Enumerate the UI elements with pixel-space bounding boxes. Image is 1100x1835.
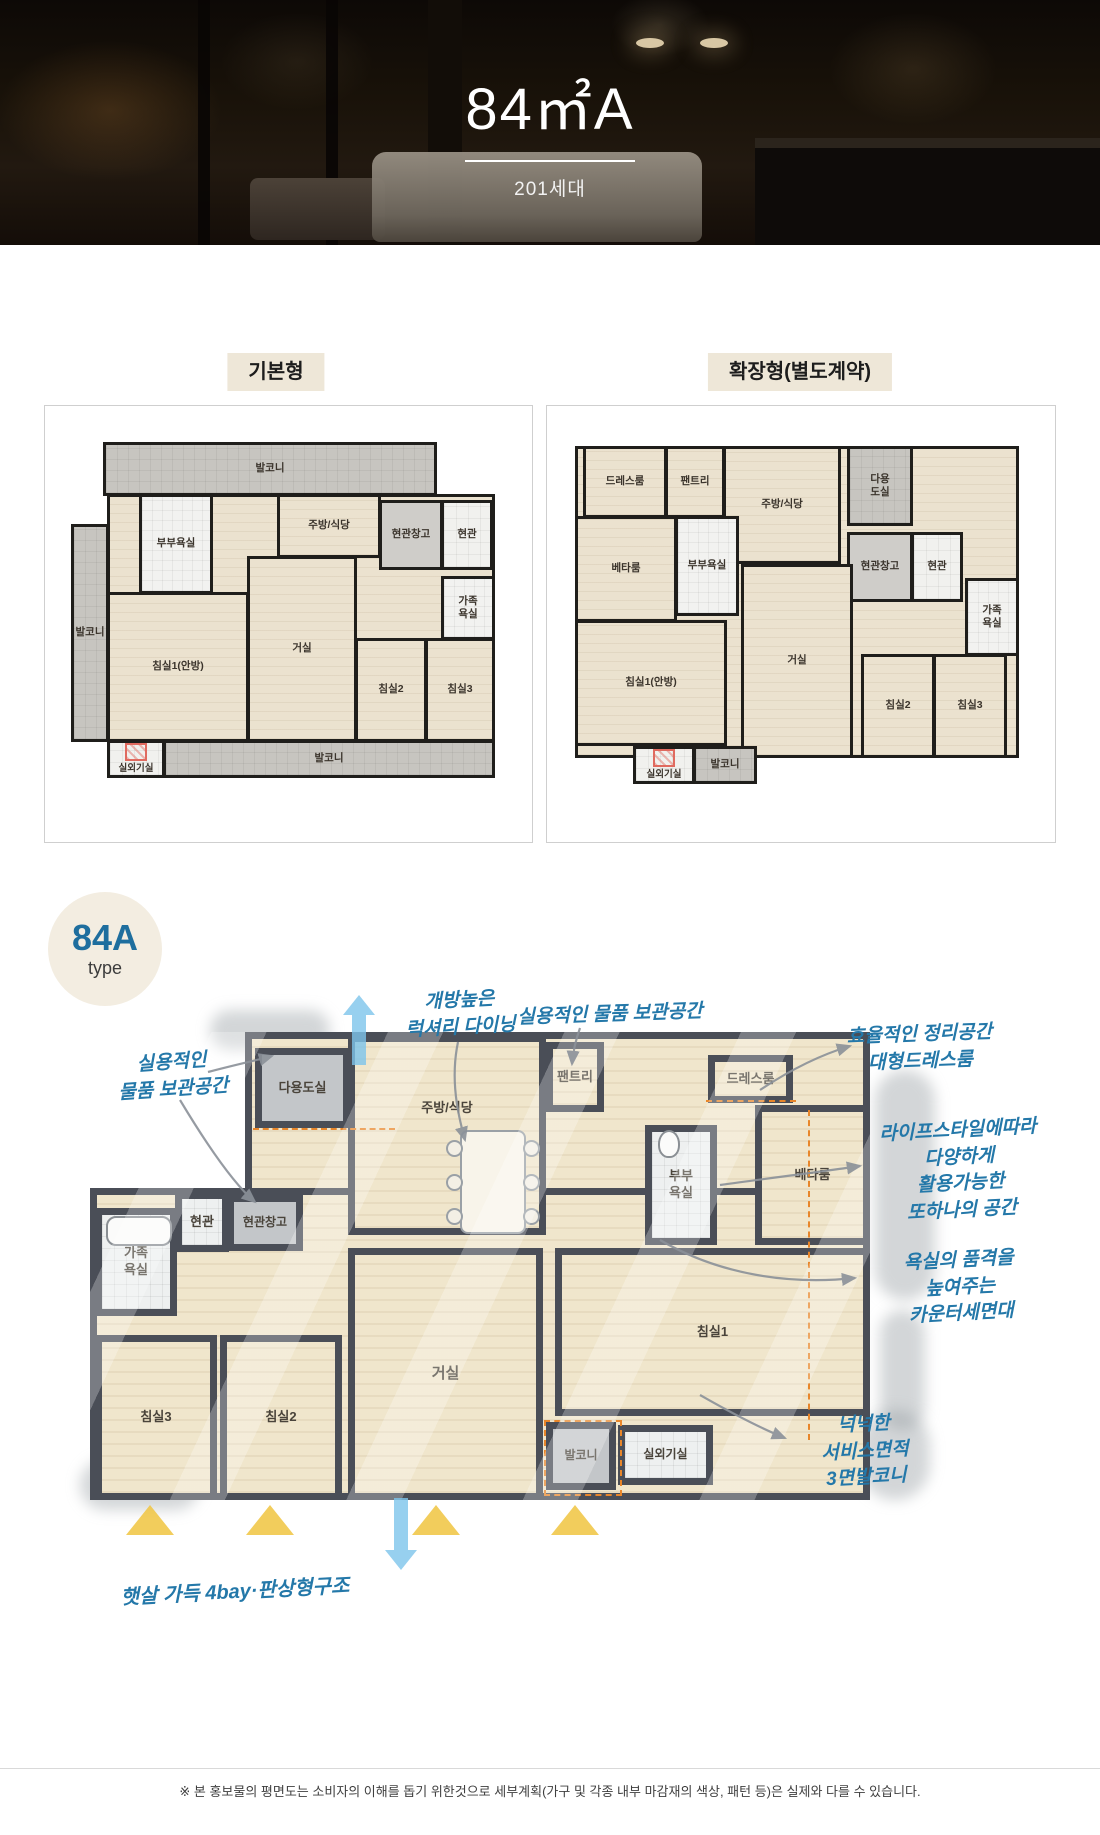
room-utility: 다용 도실 bbox=[847, 446, 913, 526]
room-balcony-top: 발코니 bbox=[103, 442, 437, 496]
note-counter: 욕실의 품격을 높여주는 카운터세면대 bbox=[858, 1243, 1062, 1333]
label-extended-type: 확장형(별도계약) bbox=[708, 353, 892, 391]
room-label: 현관 bbox=[927, 560, 946, 573]
arrow-to-balcony-note bbox=[700, 1395, 785, 1438]
room-label: 발코니 bbox=[256, 462, 285, 475]
room-label: 실외기실 bbox=[647, 769, 682, 781]
room-kitchen: 주방/식당 bbox=[723, 446, 841, 564]
room-label: 부부욕실 bbox=[157, 537, 196, 550]
room-label: 가족 욕실 bbox=[982, 604, 1001, 630]
room-ac: 실외기실 bbox=[633, 746, 695, 784]
title-divider bbox=[465, 160, 635, 162]
room-entry-storage: 현관창고 bbox=[379, 500, 443, 570]
note-dress-room: 효율적인 정리공간 대형드레스룸 bbox=[794, 1018, 1046, 1080]
floorplan-basic: 발코니 발코니 부부욕실 주방/식당 현관창고 현관 가족 욕실 침실1(안방)… bbox=[44, 405, 533, 843]
room-living: 거실 bbox=[741, 564, 853, 758]
room-kitchen: 주방/식당 bbox=[277, 494, 381, 558]
arrow-to-dining bbox=[455, 1042, 465, 1140]
room-label: 팬트리 bbox=[681, 475, 710, 488]
room-label: 현관창고 bbox=[861, 560, 900, 573]
room-balcony-left: 발코니 bbox=[71, 524, 109, 742]
floorplan-extended: 드레스룸 팬트리 주방/식당 다용 도실 베타룸 부부욕실 현관창고 현관 가족… bbox=[546, 405, 1056, 843]
room-family-bath: 가족 욕실 bbox=[965, 578, 1019, 656]
room-beta: 베타룸 bbox=[575, 516, 677, 622]
room-pantry: 팬트리 bbox=[665, 446, 725, 518]
ac-unit-icon bbox=[653, 749, 675, 767]
room-balcony: 발코니 bbox=[693, 746, 757, 784]
room-dress: 드레스룸 bbox=[583, 446, 667, 518]
type-badge-title: 84A bbox=[72, 920, 138, 956]
arrow-to-pantry bbox=[572, 1028, 580, 1064]
room-label: 드레스룸 bbox=[606, 475, 645, 488]
room-entry-storage: 현관창고 bbox=[847, 532, 913, 602]
note-balcony: 넉넉한 서비스면적 3면발코니 bbox=[778, 1408, 952, 1497]
room-label: 발코니 bbox=[76, 626, 105, 639]
room-master-bath: 부부욕실 bbox=[675, 516, 739, 616]
room-bedroom3: 침실3 bbox=[933, 654, 1007, 758]
room-entry: 현관 bbox=[911, 532, 963, 602]
label-basic-type: 기본형 bbox=[227, 353, 324, 391]
footer-disclaimer: ※ 본 홍보물의 평면도는 소비자의 이해를 돕기 위한것으로 세부계획(가구 … bbox=[0, 1781, 1100, 1800]
page-title: 84㎡A bbox=[0, 62, 1100, 146]
room-label: 현관창고 bbox=[392, 528, 431, 541]
page: 84㎡A 201세대 기본형 확장형(별도계약) 발코니 발코니 부부욕실 주방… bbox=[0, 0, 1100, 1835]
room-entry: 현관 bbox=[441, 500, 493, 570]
room-bedroom2: 침실2 bbox=[355, 638, 427, 742]
room-label: 다용 도실 bbox=[870, 473, 889, 499]
room-label: 침실2 bbox=[885, 699, 910, 712]
room-bedroom1: 침실1(안방) bbox=[107, 592, 249, 742]
hero-banner: 84㎡A 201세대 bbox=[0, 0, 1100, 245]
arrow-to-betaroom-note bbox=[720, 1166, 860, 1185]
room-label: 거실 bbox=[787, 654, 806, 667]
room-living: 거실 bbox=[247, 556, 357, 742]
room-label: 침실1(안방) bbox=[152, 660, 203, 673]
arrow-to-entry-storage bbox=[180, 1100, 255, 1202]
room-label: 부부욕실 bbox=[688, 559, 727, 572]
arrow-to-counter-note bbox=[660, 1240, 855, 1280]
room-label: 침실3 bbox=[957, 699, 982, 712]
room-label: 가족 욕실 bbox=[458, 595, 477, 621]
room-label: 침실3 bbox=[447, 683, 472, 696]
room-label: 침실2 bbox=[378, 683, 403, 696]
room-label: 현관 bbox=[457, 528, 476, 541]
type-badge-subtitle: type bbox=[88, 958, 122, 979]
room-family-bath: 가족 욕실 bbox=[441, 576, 495, 640]
room-ac: 실외기실 bbox=[107, 740, 165, 778]
room-label: 실외기실 bbox=[119, 763, 154, 775]
room-balcony-bottom: 발코니 bbox=[163, 740, 495, 778]
hero-text: 84㎡A 201세대 bbox=[0, 0, 1100, 201]
room-label: 발코니 bbox=[711, 758, 740, 771]
footer-divider bbox=[0, 1768, 1100, 1769]
room-label: 거실 bbox=[292, 642, 311, 655]
unit-count: 201세대 bbox=[0, 174, 1100, 201]
room-bedroom3: 침실3 bbox=[425, 638, 495, 742]
room-label: 주방/식당 bbox=[308, 519, 350, 532]
room-label: 발코니 bbox=[315, 752, 344, 765]
room-label: 베타룸 bbox=[612, 562, 641, 575]
room-master-bath: 부부욕실 bbox=[139, 494, 213, 594]
room-bedroom2: 침실2 bbox=[861, 654, 935, 758]
room-label: 침실1(안방) bbox=[625, 676, 676, 689]
note-beta-room: 라이프스타일에따라 다양하게 활용가능한 또하나의 공간 bbox=[847, 1112, 1072, 1230]
ac-unit-icon bbox=[125, 743, 147, 761]
sketch-floorplan: 다용도실 주방/식당 팬트리 드레스룸 부부 욕실 베타룸 현관 현관창고 가족… bbox=[60, 980, 1050, 1660]
room-bedroom1: 침실1(안방) bbox=[575, 620, 727, 746]
room-label: 주방/식당 bbox=[761, 498, 803, 511]
